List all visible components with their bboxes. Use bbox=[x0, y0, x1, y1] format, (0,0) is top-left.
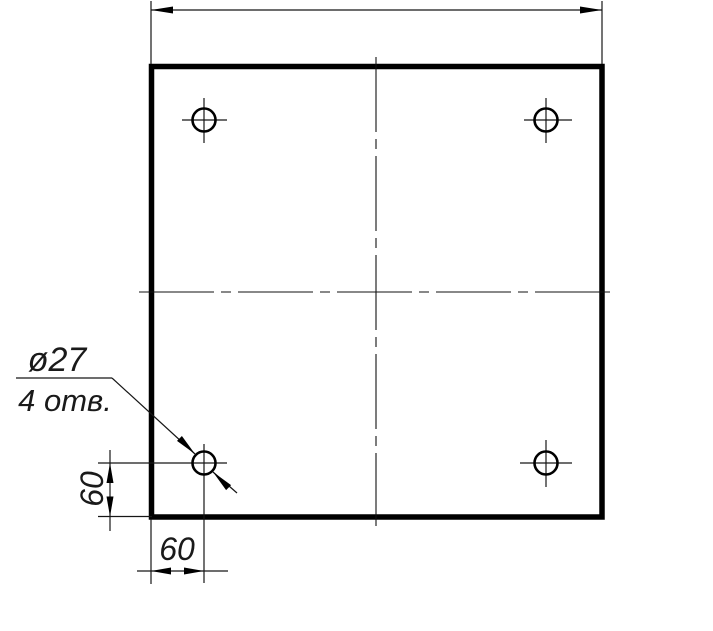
drawing-canvas: 60 60 ø27 4 отв. bbox=[0, 0, 713, 631]
hole-bottom-right bbox=[520, 440, 572, 487]
dimension-value-horizontal: 60 bbox=[159, 531, 195, 567]
hole-diameter-label: ø27 bbox=[28, 341, 88, 379]
arrowhead-right-icon bbox=[184, 568, 204, 575]
dimension-value-vertical: 60 bbox=[74, 471, 110, 507]
dimension-hole-offset-vertical: 60 bbox=[74, 450, 152, 531]
hole-count-label: 4 отв. bbox=[18, 383, 112, 418]
dimension-top-overall bbox=[151, 1, 602, 64]
hole-top-left bbox=[182, 98, 227, 143]
leader-arrowhead-icon bbox=[177, 436, 195, 454]
arrowhead-left-icon bbox=[151, 568, 171, 575]
arrowhead-right-icon bbox=[580, 7, 602, 14]
leader-arrowhead-opposite-icon bbox=[213, 472, 231, 490]
centerlines bbox=[139, 57, 611, 526]
arrowhead-left-icon bbox=[151, 7, 173, 14]
drawing-sheet: 60 60 ø27 4 отв. bbox=[0, 0, 713, 631]
hole-top-right bbox=[524, 98, 572, 143]
dimension-hole-offset-horizontal: 60 bbox=[137, 519, 228, 584]
